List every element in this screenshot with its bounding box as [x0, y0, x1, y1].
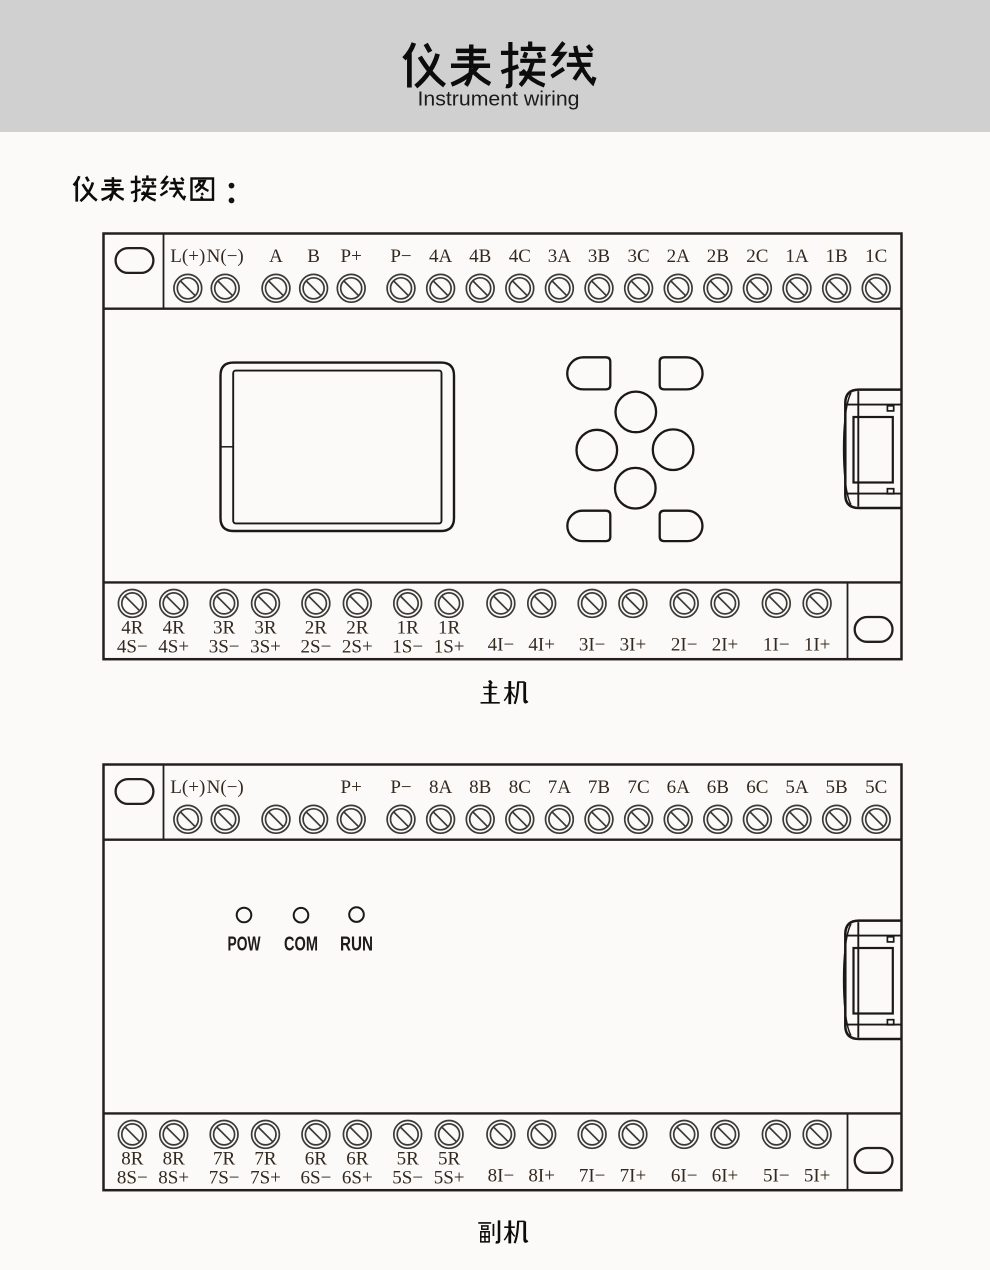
svg-text:5B: 5B — [826, 777, 848, 798]
svg-text:5I+: 5I+ — [804, 1165, 831, 1186]
svg-text:8S−: 8S− — [117, 1167, 148, 1188]
svg-text:6B: 6B — [707, 777, 729, 798]
svg-text:2R: 2R — [305, 617, 328, 638]
svg-text:1I+: 1I+ — [804, 634, 831, 655]
svg-text:6I−: 6I− — [671, 1165, 698, 1186]
svg-text:2R: 2R — [346, 617, 369, 638]
svg-text:N(−): N(−) — [207, 777, 244, 798]
svg-text:3R: 3R — [254, 617, 277, 638]
svg-text:5I−: 5I− — [763, 1165, 790, 1186]
svg-text:6R: 6R — [305, 1148, 328, 1169]
svg-text:1S+: 1S+ — [434, 636, 465, 657]
svg-text:6A: 6A — [667, 777, 691, 798]
svg-text:P+: P+ — [341, 246, 362, 267]
svg-text:8I+: 8I+ — [528, 1165, 555, 1186]
svg-text:A: A — [269, 246, 283, 267]
svg-text:8C: 8C — [509, 777, 531, 798]
svg-text:8R: 8R — [121, 1148, 144, 1169]
svg-text:6S−: 6S− — [301, 1167, 332, 1188]
svg-text:4A: 4A — [429, 246, 453, 267]
svg-text:5C: 5C — [865, 777, 887, 798]
svg-text:6I+: 6I+ — [712, 1165, 739, 1186]
svg-text:5R: 5R — [397, 1148, 420, 1169]
svg-text:3R: 3R — [213, 617, 236, 638]
svg-text:L(+): L(+) — [170, 246, 205, 267]
svg-text:1R: 1R — [397, 617, 420, 638]
svg-text:7R: 7R — [213, 1148, 236, 1169]
svg-text:7B: 7B — [588, 777, 610, 798]
svg-text:8A: 8A — [429, 777, 453, 798]
svg-text:P−: P− — [390, 777, 411, 798]
svg-text:1I−: 1I− — [763, 634, 790, 655]
svg-text:B: B — [307, 246, 320, 267]
svg-text:1S−: 1S− — [392, 636, 423, 657]
svg-text:Instrument wiring: Instrument wiring — [418, 88, 580, 111]
svg-text:RUN: RUN — [340, 934, 373, 956]
svg-text:4I−: 4I− — [488, 634, 515, 655]
svg-text:7S+: 7S+ — [250, 1167, 281, 1188]
svg-text:2S−: 2S− — [301, 636, 332, 657]
svg-text:8I−: 8I− — [488, 1165, 515, 1186]
svg-text:P−: P− — [390, 246, 411, 267]
svg-text:COM: COM — [284, 934, 318, 956]
svg-text:3C: 3C — [628, 246, 650, 267]
svg-text:4S+: 4S+ — [158, 636, 189, 657]
svg-text:L(+): L(+) — [170, 777, 205, 798]
svg-text:1B: 1B — [826, 246, 848, 267]
svg-text:3S−: 3S− — [209, 636, 240, 657]
svg-text:4R: 4R — [121, 617, 144, 638]
svg-text:1A: 1A — [785, 246, 809, 267]
svg-text:2B: 2B — [707, 246, 729, 267]
svg-text:3B: 3B — [588, 246, 610, 267]
svg-text:P+: P+ — [341, 777, 362, 798]
svg-text:4B: 4B — [469, 246, 491, 267]
svg-text:8R: 8R — [163, 1148, 186, 1169]
svg-text:2S+: 2S+ — [342, 636, 373, 657]
svg-text:7A: 7A — [548, 777, 572, 798]
svg-text:8S+: 8S+ — [158, 1167, 189, 1188]
svg-text:5S−: 5S− — [392, 1167, 423, 1188]
svg-text:3A: 3A — [548, 246, 572, 267]
svg-text:6C: 6C — [746, 777, 768, 798]
svg-text:4S−: 4S− — [117, 636, 148, 657]
svg-text:2I+: 2I+ — [712, 634, 739, 655]
svg-text:4C: 4C — [509, 246, 531, 267]
svg-text:7I−: 7I− — [579, 1165, 606, 1186]
svg-text:6R: 6R — [346, 1148, 369, 1169]
svg-text:1C: 1C — [865, 246, 887, 267]
svg-text:4R: 4R — [163, 617, 186, 638]
svg-text:2C: 2C — [746, 246, 768, 267]
svg-text:4I+: 4I+ — [528, 634, 555, 655]
svg-text:N(−): N(−) — [207, 246, 244, 267]
svg-text:7C: 7C — [628, 777, 650, 798]
svg-text:2I−: 2I− — [671, 634, 698, 655]
svg-text:3I−: 3I− — [579, 634, 606, 655]
svg-text:2A: 2A — [667, 246, 691, 267]
svg-text:3I+: 3I+ — [620, 634, 647, 655]
svg-text:5R: 5R — [438, 1148, 461, 1169]
svg-text:5A: 5A — [785, 777, 809, 798]
svg-text:8B: 8B — [469, 777, 491, 798]
svg-text:7S−: 7S− — [209, 1167, 240, 1188]
svg-text:5S+: 5S+ — [434, 1167, 465, 1188]
svg-text:7R: 7R — [254, 1148, 277, 1169]
svg-text:6S+: 6S+ — [342, 1167, 373, 1188]
svg-text:POW: POW — [228, 934, 261, 956]
svg-text:7I+: 7I+ — [620, 1165, 647, 1186]
svg-text:3S+: 3S+ — [250, 636, 281, 657]
svg-text:1R: 1R — [438, 617, 461, 638]
